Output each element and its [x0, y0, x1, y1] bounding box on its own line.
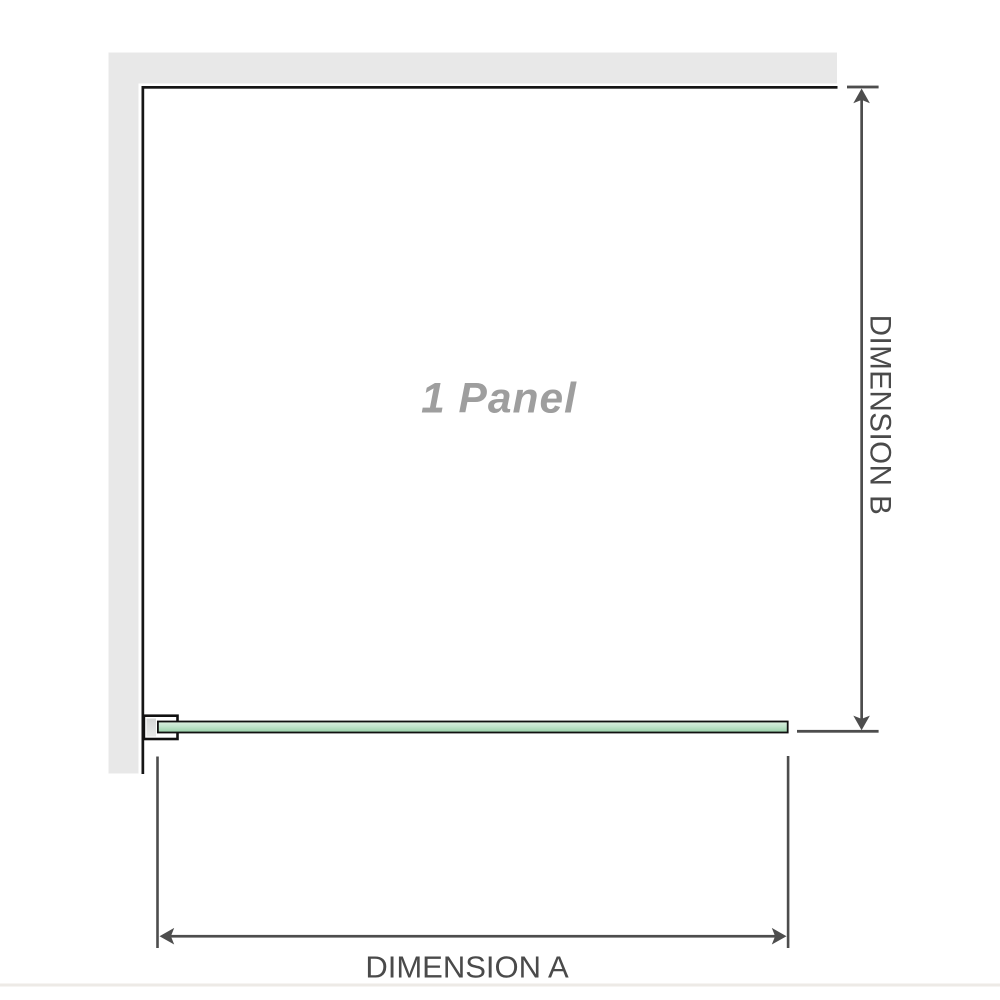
- svg-text:DIMENSION A: DIMENSION A: [365, 949, 569, 984]
- svg-text:DIMENSION B: DIMENSION B: [864, 315, 897, 516]
- svg-text:1 Panel: 1 Panel: [421, 376, 577, 423]
